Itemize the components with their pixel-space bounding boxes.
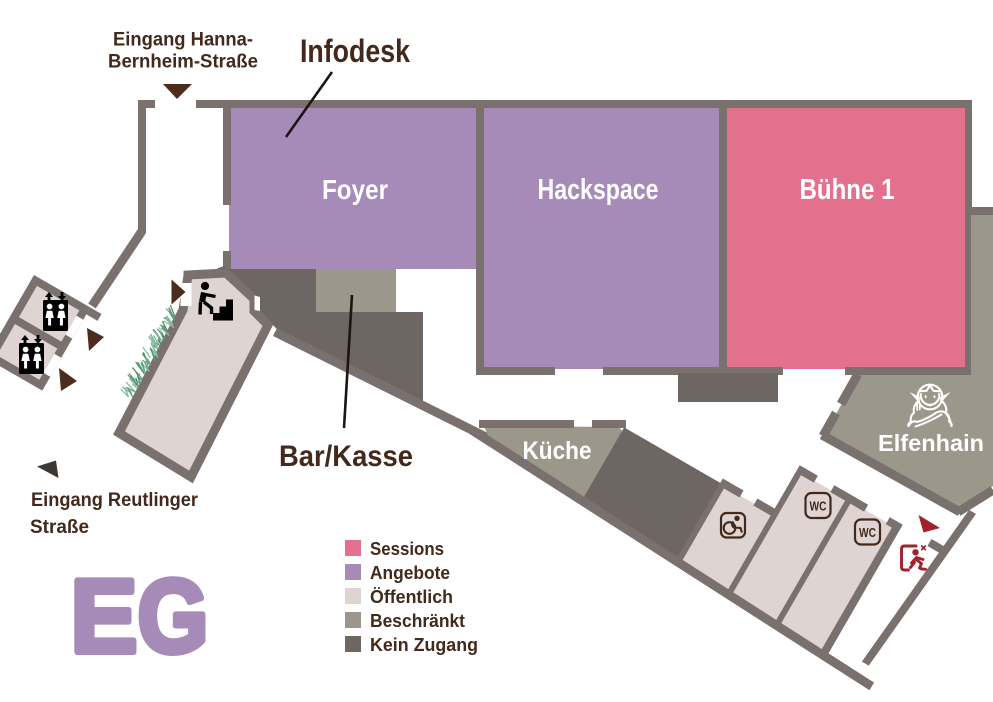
- svg-text:Foyer: Foyer: [322, 174, 388, 205]
- svg-text:Elfenhain: Elfenhain: [878, 430, 984, 456]
- svg-text:Bernheim-Straße: Bernheim-Straße: [108, 52, 258, 73]
- svg-text:Angebote: Angebote: [370, 563, 450, 583]
- svg-text:Öffentlich: Öffentlich: [370, 587, 453, 607]
- svg-text:G: G: [138, 559, 209, 675]
- svg-text:WC: WC: [859, 526, 876, 540]
- svg-text:Hackspace: Hackspace: [538, 174, 659, 206]
- svg-text:Bar/Kasse: Bar/Kasse: [279, 440, 413, 473]
- svg-text:Infodesk: Infodesk: [300, 33, 410, 69]
- svg-text:WC: WC: [810, 499, 827, 513]
- svg-text:Straße: Straße: [30, 517, 89, 538]
- svg-text:Küche: Küche: [523, 437, 592, 465]
- svg-text:Eingang Reutlinger: Eingang Reutlinger: [31, 490, 199, 511]
- svg-text:Sessions: Sessions: [370, 539, 444, 559]
- svg-text:Bühne 1: Bühne 1: [800, 174, 895, 206]
- svg-text:E: E: [71, 559, 138, 675]
- svg-text:Kein Zugang: Kein Zugang: [370, 635, 478, 655]
- svg-text:Eingang Hanna-: Eingang Hanna-: [113, 30, 253, 51]
- svg-text:Beschränkt: Beschränkt: [370, 611, 465, 631]
